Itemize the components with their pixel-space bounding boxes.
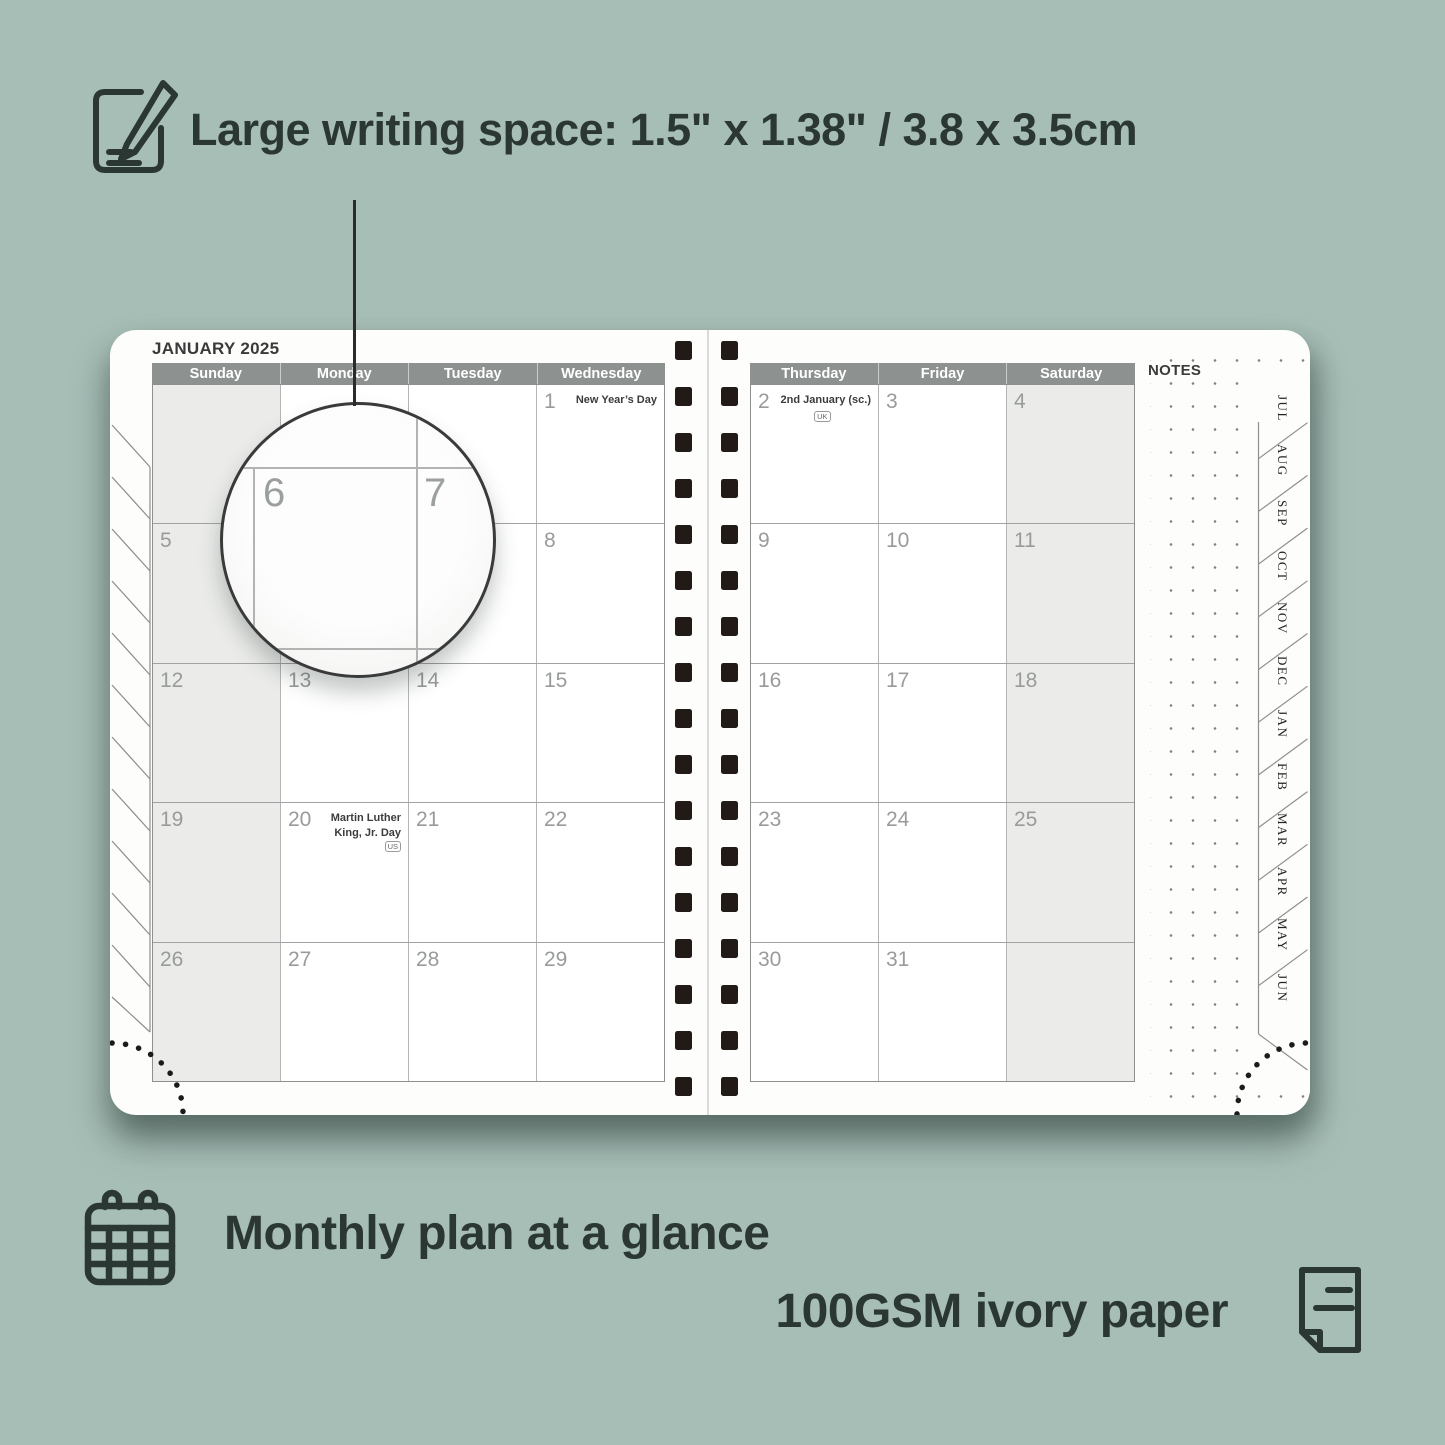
spiral-hole [721, 479, 738, 498]
month-tab-apr: APR [1271, 859, 1293, 905]
calendar-cell [1007, 943, 1134, 1081]
spiral-hole [675, 709, 692, 728]
magnified-date: 7 [424, 471, 446, 516]
calendar-cell: 28 [409, 943, 537, 1081]
day-header-monday: Monday [281, 363, 410, 384]
spiral-hole [675, 571, 692, 590]
calendar-cell: 14 [409, 664, 537, 802]
right-day-header-row: ThursdayFridaySaturday [750, 363, 1135, 384]
date-number: 19 [160, 807, 183, 941]
right-calendar-grid: 22nd January (sc.) UK3491011161718232425… [750, 384, 1135, 1082]
calendar-cell: 19 [153, 803, 281, 941]
day-header-thursday: Thursday [750, 363, 879, 384]
date-number: 2 [758, 389, 770, 523]
day-header-sunday: Sunday [152, 363, 281, 384]
calendar-cell: 24 [879, 803, 1007, 941]
calendar-cell: 12 [153, 664, 281, 802]
date-number: 16 [758, 668, 781, 802]
month-tab-feb: FEB [1271, 754, 1293, 800]
spiral-hole [721, 617, 738, 636]
month-tab-aug: AUG [1271, 438, 1293, 484]
month-tab-may: MAY [1271, 912, 1293, 958]
feature-monthly-plan: Monthly plan at a glance [224, 1206, 769, 1261]
date-number: 5 [160, 528, 172, 662]
month-tab-jul: JUL [1271, 385, 1293, 431]
calendar-week-row: 91011 [751, 524, 1134, 663]
date-number: 10 [886, 528, 909, 662]
day-header-saturday: Saturday [1007, 363, 1135, 384]
calendar-cell: 26 [153, 943, 281, 1081]
date-number: 24 [886, 807, 909, 941]
calendar-cell: 3 [879, 385, 1007, 523]
holiday-label: New Year’s Day [560, 389, 657, 523]
calendar-cell: 31 [879, 943, 1007, 1081]
date-number: 15 [544, 668, 567, 802]
date-number: 28 [416, 947, 439, 1081]
calendar-week-row: 12131415 [153, 664, 664, 803]
spiral-hole [675, 755, 692, 774]
spiral-holes-left [675, 341, 692, 1096]
spiral-hole [675, 893, 692, 912]
date-number: 30 [758, 947, 781, 1081]
date-number: 14 [416, 668, 439, 802]
month-tab-strip: JULAUGSEPOCTNOVDECJANFEBMARAPRMAYJUN [1256, 370, 1310, 1094]
spiral-hole [721, 433, 738, 452]
spiral-hole [675, 479, 692, 498]
spiral-hole [721, 847, 738, 866]
day-header-friday: Friday [879, 363, 1008, 384]
spiral-hole [721, 709, 738, 728]
notepad-pencil-icon [83, 76, 183, 176]
calendar-week-row: 1920Martin Luther King, Jr. Day US2122 [153, 803, 664, 942]
holiday-label: Martin Luther King, Jr. Day US [315, 807, 401, 941]
day-header-wednesday: Wednesday [538, 363, 666, 384]
month-tab-jan: JAN [1271, 701, 1293, 747]
calendar-cell: 22nd January (sc.) UK [751, 385, 879, 523]
calendar-cell: 20Martin Luther King, Jr. Day US [281, 803, 409, 941]
calendar-week-row: 22nd January (sc.) UK34 [751, 385, 1134, 524]
spiral-hole [675, 433, 692, 452]
magnified-date: 6 [263, 471, 285, 516]
calendar-cell: 30 [751, 943, 879, 1081]
holiday-label: 2nd January (sc.) UK [774, 389, 871, 523]
magnifier-grid-line [416, 405, 418, 675]
magnifier-grid-line [253, 467, 255, 675]
date-number: 17 [886, 668, 909, 802]
magnifier-circle: 6 7 [220, 402, 496, 678]
day-header-tuesday: Tuesday [409, 363, 538, 384]
date-number: 20 [288, 807, 311, 941]
calendar-cell: 8 [537, 524, 664, 662]
spiral-hole [721, 1077, 738, 1096]
date-number: 27 [288, 947, 311, 1081]
month-tab-dec: DEC [1271, 649, 1293, 695]
month-tab-jun: JUN [1271, 965, 1293, 1011]
calendar-cell: 29 [537, 943, 664, 1081]
calendar-cell: 13 [281, 664, 409, 802]
date-number: 26 [160, 947, 183, 1081]
date-number: 4 [1014, 389, 1026, 523]
spiral-hole [675, 617, 692, 636]
calendar-cell: 1New Year’s Day [537, 385, 664, 523]
month-tab-nov: NOV [1271, 596, 1293, 642]
feature-writing-space: Large writing space: 1.5" x 1.38" / 3.8 … [190, 104, 1137, 156]
spiral-hole [675, 801, 692, 820]
spiral-hole [675, 663, 692, 682]
spiral-hole [675, 387, 692, 406]
calendar-week-row: 26272829 [153, 943, 664, 1081]
month-title: JANUARY 2025 [152, 339, 279, 359]
magnifier-grid-line [223, 648, 493, 650]
calendar-week-row: 232425 [751, 803, 1134, 942]
spiral-hole [721, 893, 738, 912]
calendar-cell: 27 [281, 943, 409, 1081]
spiral-hole [675, 341, 692, 360]
calendar-cell: 11 [1007, 524, 1134, 662]
spiral-hole [721, 387, 738, 406]
country-badge: UK [814, 411, 830, 422]
page-seam [707, 330, 709, 1115]
spiral-hole [675, 1031, 692, 1050]
magnifier-grid-line [223, 467, 493, 469]
spiral-hole [721, 525, 738, 544]
calendar-cell: 18 [1007, 664, 1134, 802]
spiral-hole [721, 1031, 738, 1050]
date-number: 8 [544, 528, 556, 662]
calendar-cell: 25 [1007, 803, 1134, 941]
date-number: 11 [1014, 528, 1036, 662]
spiral-hole [721, 755, 738, 774]
spiral-hole [721, 571, 738, 590]
paper-page-icon [1272, 1262, 1368, 1358]
product-image: Large writing space: 1.5" x 1.38" / 3.8 … [0, 0, 1445, 1445]
calendar-cell: 9 [751, 524, 879, 662]
spiral-hole [721, 939, 738, 958]
spiral-hole [675, 985, 692, 1004]
calendar-cell: 16 [751, 664, 879, 802]
date-number: 13 [288, 668, 311, 802]
spiral-hole [675, 847, 692, 866]
month-tab-sep: SEP [1271, 490, 1293, 536]
calendar-week-row: 161718 [751, 664, 1134, 803]
calendar-cell: 4 [1007, 385, 1134, 523]
date-number: 12 [160, 668, 183, 802]
spiral-hole [721, 985, 738, 1004]
calendar-cell: 22 [537, 803, 664, 941]
calendar-cell: 10 [879, 524, 1007, 662]
spiral-hole [675, 939, 692, 958]
date-number: 21 [416, 807, 439, 941]
calendar-cell: 23 [751, 803, 879, 941]
spiral-hole [721, 801, 738, 820]
notes-label: NOTES [1148, 362, 1210, 379]
date-number: 18 [1014, 668, 1037, 802]
feature-paper: 100GSM ivory paper [775, 1284, 1228, 1339]
spiral-hole [721, 341, 738, 360]
calendar-cell: 21 [409, 803, 537, 941]
callout-line [353, 200, 356, 406]
left-day-header-row: SundayMondayTuesdayWednesday [152, 363, 665, 384]
spiral-hole [721, 663, 738, 682]
date-number: 31 [886, 947, 909, 1081]
date-number: 1 [544, 389, 556, 523]
spiral-holes-right [721, 341, 738, 1096]
month-tab-mar: MAR [1271, 807, 1293, 853]
calendar-grid-icon [78, 1186, 182, 1290]
left-edge-hatch [110, 330, 156, 1115]
spiral-hole [675, 1077, 692, 1096]
date-number: 29 [544, 947, 567, 1081]
country-badge: US [385, 841, 401, 852]
calendar-week-row: 3031 [751, 943, 1134, 1081]
date-number: 23 [758, 807, 781, 941]
calendar-cell: 17 [879, 664, 1007, 802]
month-tab-oct: OCT [1271, 543, 1293, 589]
date-number: 22 [544, 807, 567, 941]
spiral-hole [675, 525, 692, 544]
date-number: 9 [758, 528, 770, 662]
date-number: 3 [886, 389, 898, 523]
date-number: 25 [1014, 807, 1037, 941]
calendar-cell: 15 [537, 664, 664, 802]
